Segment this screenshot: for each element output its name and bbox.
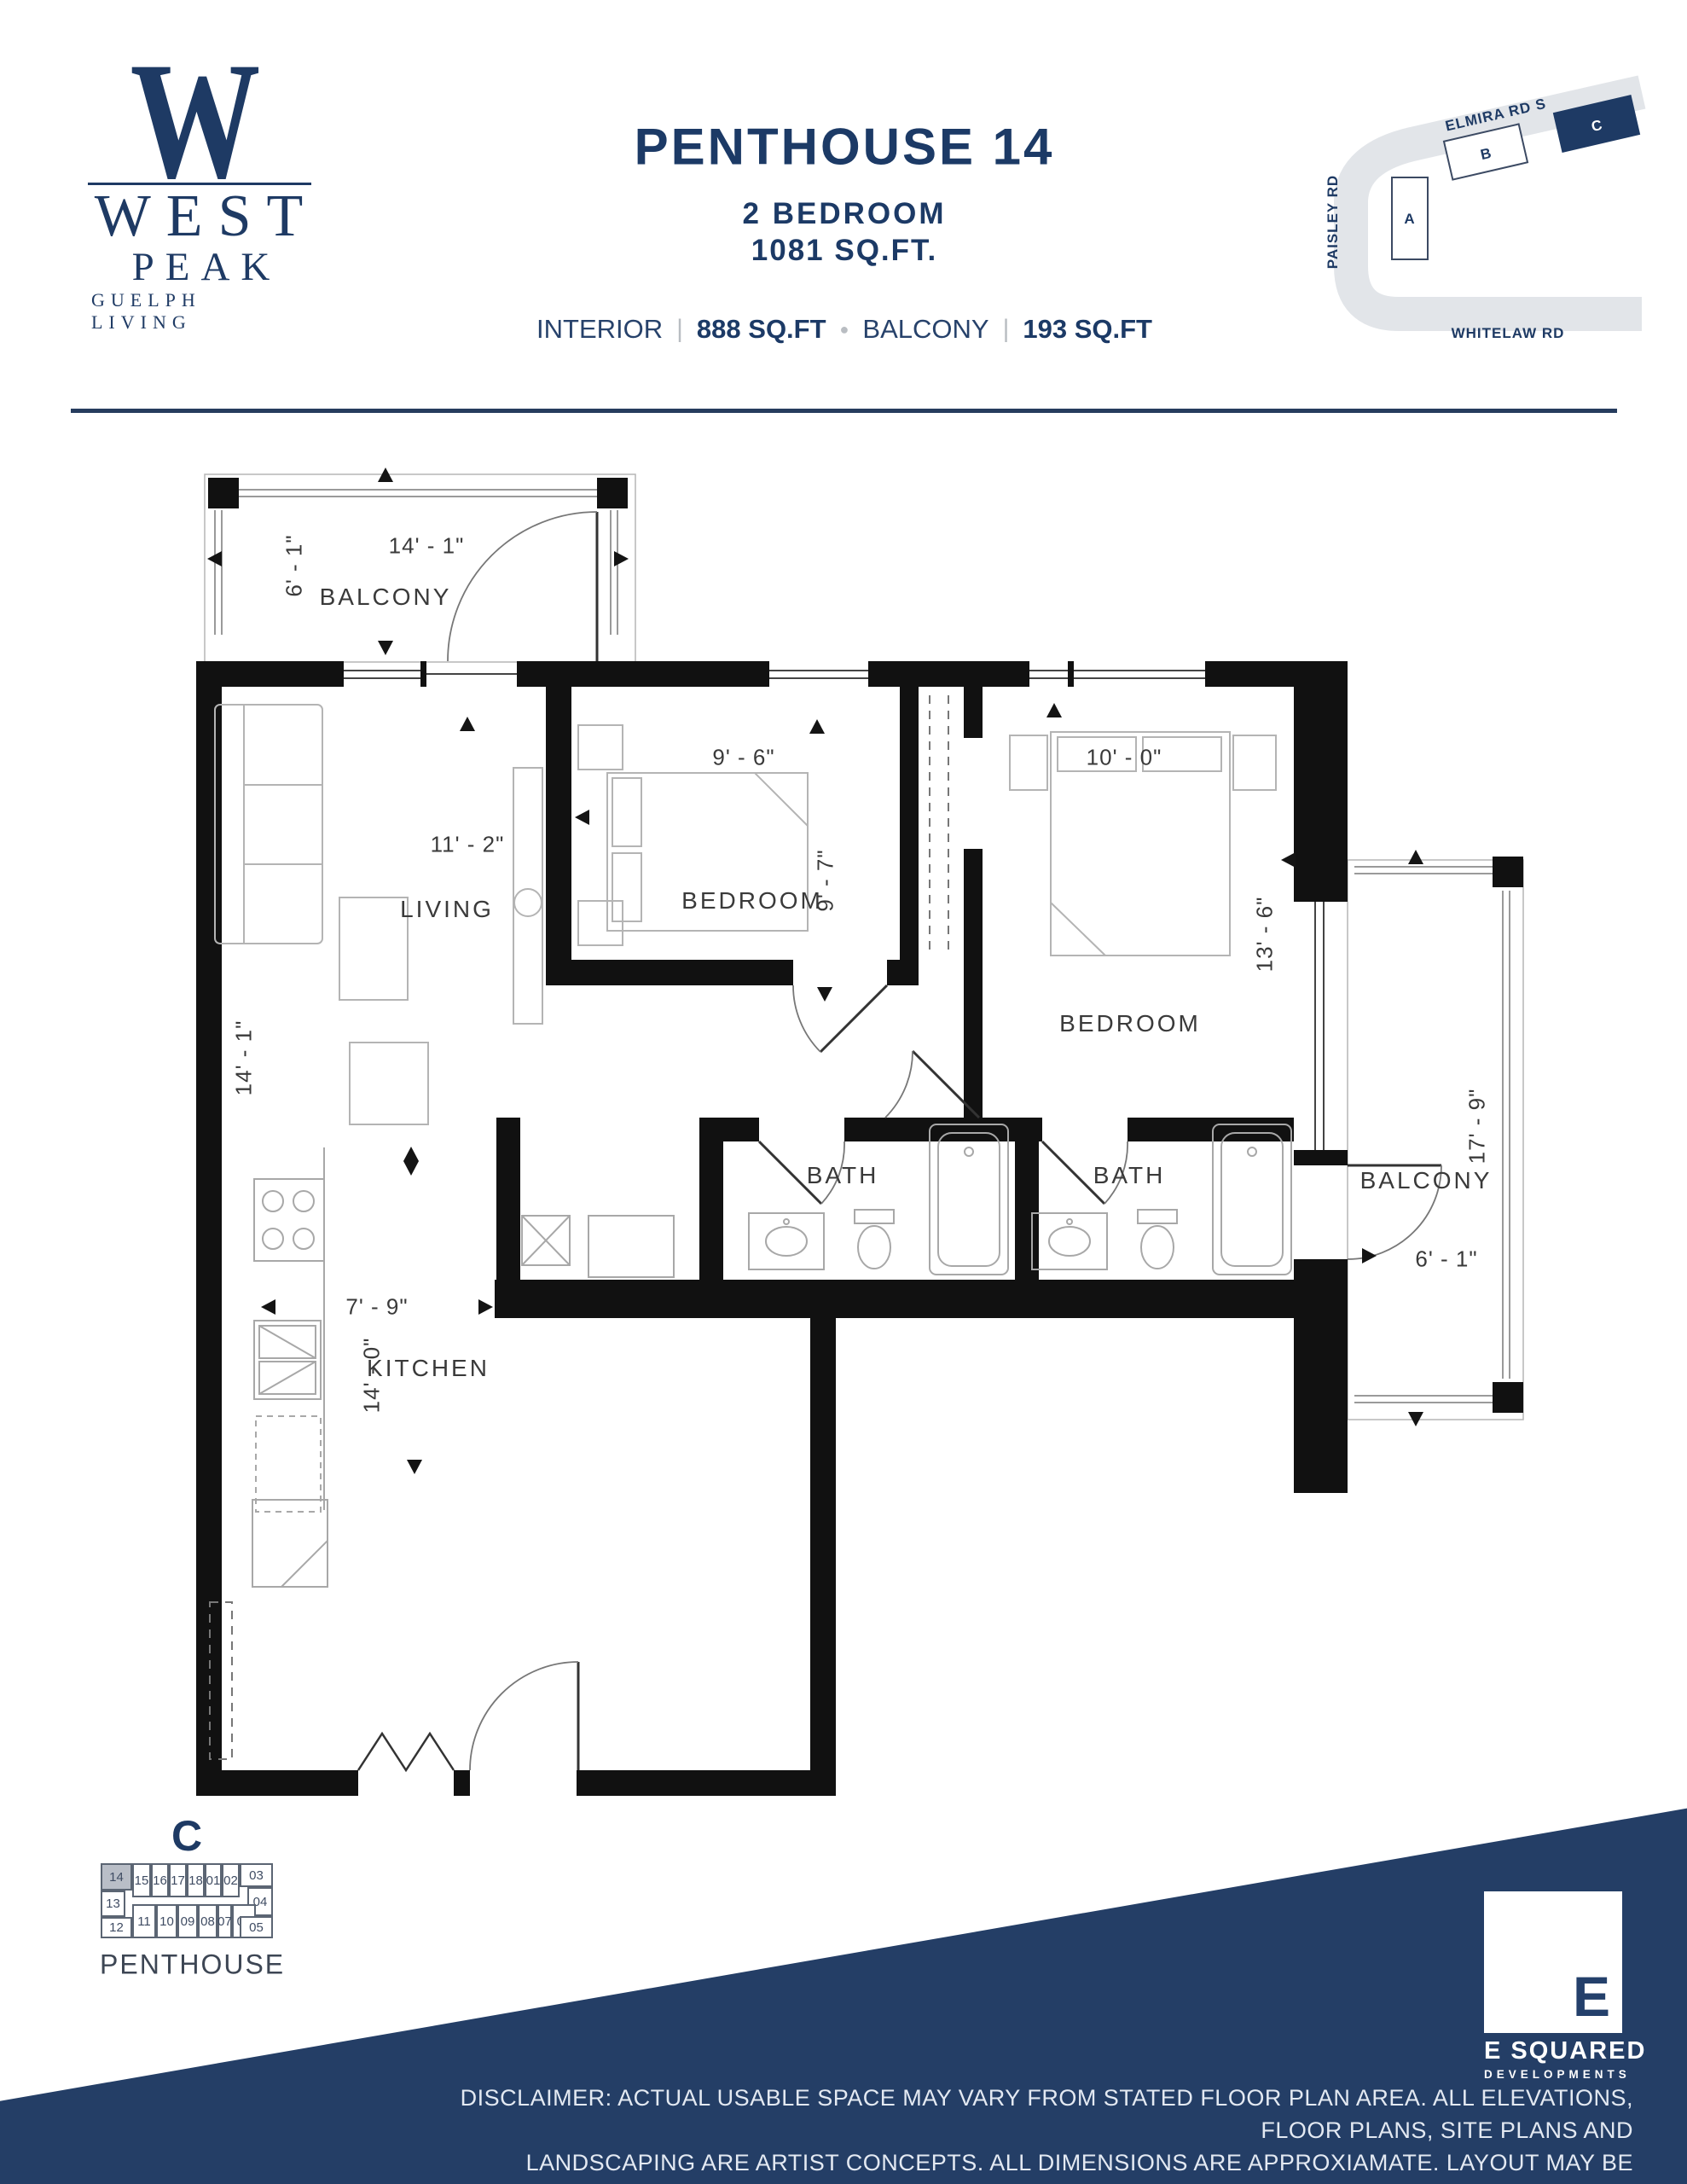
armchair	[350, 1043, 428, 1124]
room-label-bath2: BATH	[1093, 1162, 1166, 1189]
dim-bedroom2-depth: 13' - 6"	[1252, 897, 1278, 973]
room-label-balcony-tl: BALCONY	[320, 584, 452, 611]
keyplan-unit-01: 01	[205, 1863, 222, 1897]
esquared-logo: E	[1484, 1891, 1622, 2033]
dim-balcony-tl-width: 14' - 1"	[389, 533, 465, 560]
keyplan-unit-11: 11	[132, 1904, 156, 1938]
keyplan-unit-15: 15	[132, 1863, 151, 1897]
keyplan-unit-14: 14	[101, 1863, 132, 1891]
keyplan-unit-05: 05	[240, 1916, 273, 1938]
keyplan-unit-12: 12	[101, 1917, 132, 1938]
balcony-right	[1348, 860, 1523, 1420]
disclaimer-line-2: LANDSCAPING ARE ARTIST CONCEPTS. ALL DIM…	[422, 2146, 1633, 2184]
balcony-top-left-posts	[208, 478, 628, 508]
balcony-top-left	[205, 474, 635, 662]
dim-balcony-r-width: 6' - 1"	[1415, 1246, 1477, 1273]
kitchen-fixtures	[252, 1147, 328, 1587]
dim-living-depth: 14' - 1"	[231, 1020, 258, 1096]
keyplan-unit-13: 13	[101, 1891, 125, 1917]
room-label-bath1: BATH	[807, 1162, 879, 1189]
room-label-living: LIVING	[400, 896, 494, 923]
room-label-kitchen: KITCHEN	[367, 1355, 490, 1382]
disclaimer-line-1: DISCLAIMER: ACTUAL USABLE SPACE MAY VARY…	[422, 2082, 1633, 2146]
dim-kitchen-depth: 14' - 0"	[359, 1338, 386, 1414]
keyplan-grid: 141516171801020304131211100908070605	[101, 1863, 273, 1938]
media-console	[513, 768, 542, 1024]
keyplan-unit-08: 08	[198, 1904, 217, 1938]
dim-balcony-tl-depth: 6' - 1"	[281, 534, 308, 596]
dim-bedroom2-width: 10' - 0"	[1087, 745, 1162, 771]
room-label-bedroom1: BEDROOM	[681, 887, 823, 915]
room-label-balcony-r: BALCONY	[1360, 1167, 1493, 1194]
coffee-table	[339, 897, 408, 1000]
dim-kitchen-width: 7' - 9"	[345, 1294, 408, 1321]
keyplan-unit-09: 09	[177, 1904, 198, 1938]
furniture	[215, 705, 1291, 1587]
sofa	[215, 705, 322, 944]
floorplan-brochure-page: W WEST PEAK GUELPH LIVING PENTHOUSE 14 2…	[0, 0, 1687, 2184]
dishwasher	[256, 1416, 321, 1512]
bath2-fixtures	[1032, 1124, 1291, 1275]
dim-living-width: 11' - 2"	[431, 832, 505, 858]
keyplan-unit-18: 18	[187, 1863, 205, 1897]
dim-balcony-r-depth: 17' - 9"	[1464, 1089, 1491, 1165]
dim-bedroom1-depth: 9' - 7"	[813, 849, 839, 911]
esquared-logo-letter: E	[1573, 1968, 1610, 2024]
bath1-fixtures	[749, 1124, 1008, 1275]
keyplan-building-letter: C	[171, 1811, 202, 1861]
keyplan-unit-07: 07	[217, 1904, 232, 1938]
room-label-bedroom2: BEDROOM	[1059, 1010, 1201, 1037]
esquared-name: E SQUARED	[1484, 2037, 1622, 2065]
walls	[196, 661, 1348, 1796]
laundry-closet	[522, 1216, 674, 1277]
keyplan-unit-16: 16	[151, 1863, 169, 1897]
keyplan-unit-10: 10	[156, 1904, 177, 1938]
esquared-developments: DEVELOPMENTS	[1484, 2068, 1622, 2081]
kitchen-sink	[254, 1321, 321, 1399]
dim-bedroom1-width: 9' - 6"	[712, 745, 774, 771]
balcony-right-posts	[1493, 857, 1523, 1413]
keyplan-unit-02: 02	[222, 1863, 240, 1897]
stove	[254, 1179, 324, 1261]
keyplan-unit-17: 17	[169, 1863, 187, 1897]
disclaimer-text: DISCLAIMER: ACTUAL USABLE SPACE MAY VARY…	[422, 2082, 1633, 2184]
keyplan-level-label: PENTHOUSE	[100, 1949, 285, 1981]
keyplan-unit-03: 03	[240, 1863, 273, 1887]
fridge	[252, 1500, 328, 1587]
